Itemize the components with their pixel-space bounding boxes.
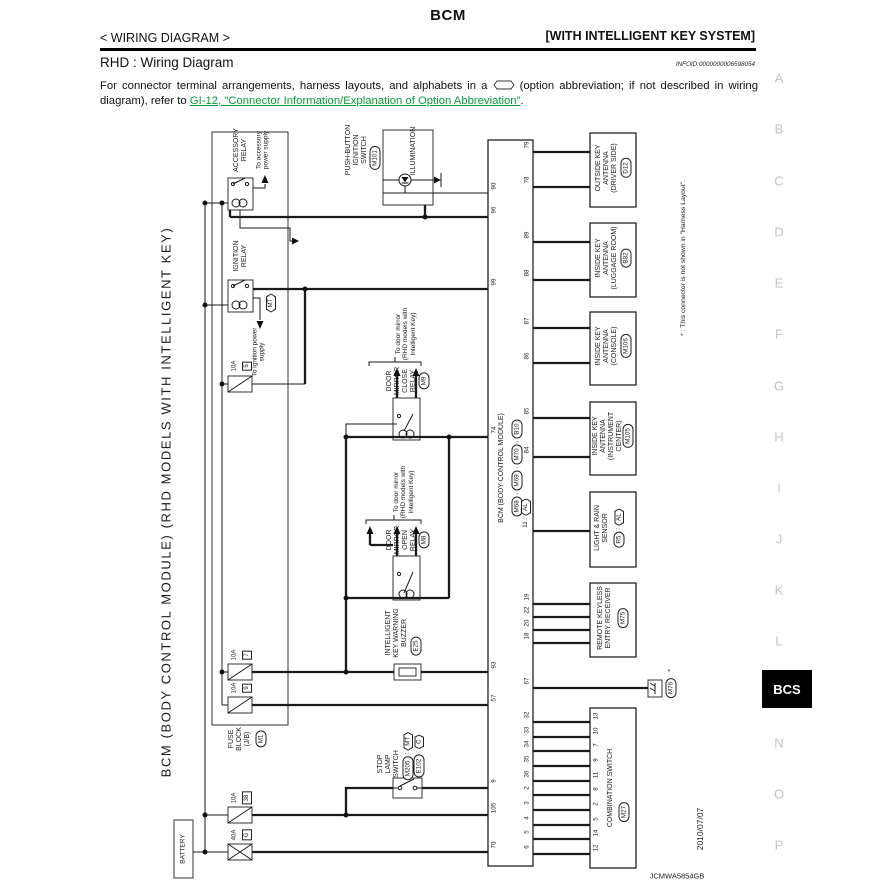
connector-r5: R5 bbox=[614, 532, 625, 548]
option-mt-hexagon-2: MT bbox=[403, 732, 413, 751]
bcm-pin-6: 6 bbox=[523, 845, 530, 848]
ignition-output-label: To ignition power supply bbox=[252, 328, 267, 377]
accessory-relay-label: ACCESSORY RELAY bbox=[233, 128, 249, 172]
fuse-symbols bbox=[228, 376, 252, 860]
door-mirror-close-relay-label: DOOR MIRROR CLOSE RELAY bbox=[386, 367, 418, 395]
inside-key-antenna-instrument-label: INSIDE KEY ANTENNA (INSTRUMENT CENTER) bbox=[592, 412, 624, 460]
bcm-pin-99: 99 bbox=[490, 279, 497, 286]
m76-star: * bbox=[668, 669, 671, 677]
stop-lamp-connector-1: M205:MT bbox=[403, 732, 414, 780]
connector-m205: M205 bbox=[403, 756, 414, 780]
comb-pin-10: 10 bbox=[592, 728, 599, 735]
fuse9-amps: 10A bbox=[232, 683, 239, 694]
connector-b10: B10 bbox=[512, 420, 523, 439]
bcm-pin-11-group: 11 :AL bbox=[521, 498, 531, 527]
bcm-pin-86: 86 bbox=[523, 353, 530, 360]
illumination-label: ILLUMINATION bbox=[410, 127, 418, 176]
wiring-diagram-canvas bbox=[0, 0, 896, 896]
comb-pin-11: 11 bbox=[592, 772, 599, 778]
fuse-block-label: FUSE BLOCK (J/B) bbox=[228, 727, 252, 751]
bcm-pin-87: 87 bbox=[523, 318, 530, 325]
fuse-block-connector: M1 bbox=[256, 731, 267, 748]
figure-code: JCMWA5854GB bbox=[650, 873, 705, 882]
fuse40-letter: G bbox=[242, 830, 252, 841]
inside-key-antenna-luggage-label: INSIDE KEY ANTENNA (LUGGAGE ROOM) bbox=[595, 226, 619, 289]
bcm-pin-4: 4 bbox=[523, 816, 530, 819]
connector-b82: B82 bbox=[621, 248, 632, 267]
connector-m1: M1 bbox=[256, 731, 267, 748]
bcm-pin-89: 89 bbox=[523, 232, 530, 239]
ignition-option: MT bbox=[266, 294, 276, 313]
inside-key-antenna-console-connector: M106 bbox=[621, 334, 632, 358]
connector-m27: M27 bbox=[619, 802, 630, 822]
outside-key-antenna-label: OUTSIDE KEY ANTENNA (DRIVER SIDE) bbox=[595, 143, 619, 192]
bcm-pin-9: 9 bbox=[490, 779, 497, 782]
bcm-pin-105: 105 bbox=[490, 803, 497, 813]
open-relay-destination-note: To door mirror (RHD models with Intellig… bbox=[393, 466, 415, 518]
bcm-pin-18: 18 bbox=[523, 633, 530, 640]
connector-m70: M70 bbox=[512, 444, 523, 464]
bcm-pin-78: 78 bbox=[523, 177, 530, 184]
fuse7-amps: 10A bbox=[232, 650, 239, 661]
bcm-pin-74: 74 bbox=[490, 427, 497, 434]
bcm-pin-36: 36 bbox=[523, 771, 530, 778]
ignition-relay-label: IGNITION RELAY bbox=[233, 240, 249, 271]
open-relay-connector: M8 bbox=[419, 532, 430, 549]
outside-key-antenna-connector: D12 bbox=[621, 158, 632, 178]
fuse5-number: 5 bbox=[242, 361, 252, 370]
connector-m101: M101 bbox=[370, 146, 381, 170]
pbis-connector: M101 bbox=[370, 146, 381, 170]
connector-d12: D12 bbox=[621, 158, 632, 178]
combination-switch-label: COMBINATION SWITCH bbox=[607, 749, 615, 827]
key-warning-buzzer-label: INTELLIGENT KEY WARNING BUZZER bbox=[385, 608, 409, 657]
bcm-pin-19: 19 bbox=[523, 594, 530, 601]
comb-pin-12: 12 bbox=[592, 845, 599, 852]
fuse40-amps: 40A bbox=[232, 830, 239, 841]
fuse7-number: 7 bbox=[242, 650, 252, 659]
remote-keyless-receiver-label: REMOTE KEYLESS ENTRY RECEIVER bbox=[597, 586, 613, 650]
diagram-side-title: BCM (BODY CONTROL MODULE) (RHD MODELS WI… bbox=[160, 227, 175, 778]
door-mirror-open-relay-label: DOOR MIRROR OPEN RELAY bbox=[386, 526, 418, 554]
bcm-pin-70: 70 bbox=[490, 842, 497, 849]
buzzer-connector: E25 bbox=[411, 636, 422, 655]
option-mt-hexagon: MT bbox=[266, 294, 276, 313]
bcm-pin-34: 34 bbox=[523, 741, 530, 748]
light-rain-sensor-connector: R5:AL bbox=[614, 508, 625, 547]
comb-pin-7: 7 bbox=[592, 743, 599, 746]
comb-pin-13: 13 bbox=[592, 713, 599, 720]
fuse38-number: 38 bbox=[242, 792, 252, 805]
connector-m75: M75 bbox=[618, 608, 629, 628]
fuse38-amps: 10A bbox=[232, 793, 239, 804]
remote-keyless-receiver-connector: M75 bbox=[618, 608, 629, 628]
connector-m76: M76 bbox=[666, 678, 677, 698]
bcm-pin-22: 22 bbox=[523, 607, 530, 614]
bcm-pin-20: 20 bbox=[523, 620, 530, 627]
bcm-pin-84: 84 bbox=[523, 447, 530, 454]
accessory-output-label: To accessory power supply bbox=[256, 131, 271, 169]
bcm-pin-2: 2 bbox=[523, 786, 530, 789]
stop-lamp-connector-2: E102:C bbox=[414, 735, 425, 778]
bcm-pin-88: 88 bbox=[523, 270, 530, 277]
close-relay-connector: M9 bbox=[419, 373, 430, 390]
connector-m105: M105 bbox=[623, 424, 634, 448]
connector-m69: M69 bbox=[512, 470, 523, 490]
bold-wires bbox=[230, 152, 648, 854]
bcm-pin-90: 90 bbox=[490, 183, 497, 190]
m76-connector: M76 bbox=[666, 678, 677, 698]
connector-e25: E25 bbox=[411, 636, 422, 655]
battery-label: BATTERY bbox=[179, 834, 186, 863]
connector-m106: M106 bbox=[621, 334, 632, 358]
combination-switch-connector: M27 bbox=[619, 802, 630, 822]
push-button-ignition-switch-label: PUSH-BUTTON IGNITION SWITCH bbox=[345, 125, 369, 175]
inside-key-antenna-console-label: INSIDE KEY ANTENNA (CONSOLE) bbox=[595, 326, 619, 365]
connector-m9: M9 bbox=[419, 373, 430, 390]
stop-lamp-switch-label: STOP LAMP SWITCH bbox=[377, 750, 401, 778]
comb-pin-9: 9 bbox=[592, 758, 599, 761]
bcm-pin-5: 5 bbox=[523, 830, 530, 833]
bcm-pin-67: 67 bbox=[523, 678, 530, 685]
fuse5-amps: 10A bbox=[232, 361, 239, 372]
relay-symbols bbox=[231, 174, 416, 790]
bcm-pin-35: 35 bbox=[523, 756, 530, 763]
inside-key-antenna-instrument-connector: M105 bbox=[623, 424, 634, 448]
bcm-module-label: BCM (BODY CONTROL MODULE) bbox=[498, 413, 506, 523]
bcm-pin-85: 85 bbox=[523, 408, 530, 415]
comb-pin-8: 8 bbox=[592, 787, 599, 790]
option-al-hexagon: AL bbox=[521, 498, 531, 516]
comb-pin-2: 2 bbox=[592, 802, 599, 805]
harness-layout-footnote: * : This connector is not shown in "Harn… bbox=[680, 180, 688, 336]
bcm-pin-33: 33 bbox=[523, 727, 530, 734]
bcm-pin-79: 79 bbox=[523, 142, 530, 149]
bcm-pin-3: 3 bbox=[523, 801, 530, 804]
bcm-pin-93: 93 bbox=[490, 662, 497, 669]
option-al-hexagon-2: AL bbox=[614, 508, 624, 526]
connector-e102: E102 bbox=[414, 755, 425, 778]
bcm-pin-96: 96 bbox=[490, 207, 497, 214]
bcm-pin-32: 32 bbox=[523, 712, 530, 719]
light-rain-sensor-label: LIGHT & RAIN SENSOR bbox=[594, 505, 610, 551]
manual-page: BCM < WIRING DIAGRAM > [WITH INTELLIGENT… bbox=[0, 0, 896, 896]
option-c-hexagon: C bbox=[414, 735, 424, 749]
fuse9-number: 9 bbox=[242, 683, 252, 692]
inside-key-antenna-luggage-connector: B82 bbox=[621, 248, 632, 267]
comb-pin-14: 14 bbox=[592, 830, 599, 837]
connector-m8: M8 bbox=[419, 532, 430, 549]
bcm-pin-57: 57 bbox=[490, 695, 497, 702]
comb-pin-5: 5 bbox=[592, 817, 599, 820]
close-relay-destination-note: To door mirror (RHD models with Intellig… bbox=[395, 308, 417, 360]
revision-date: 2010/07/07 bbox=[696, 808, 706, 851]
